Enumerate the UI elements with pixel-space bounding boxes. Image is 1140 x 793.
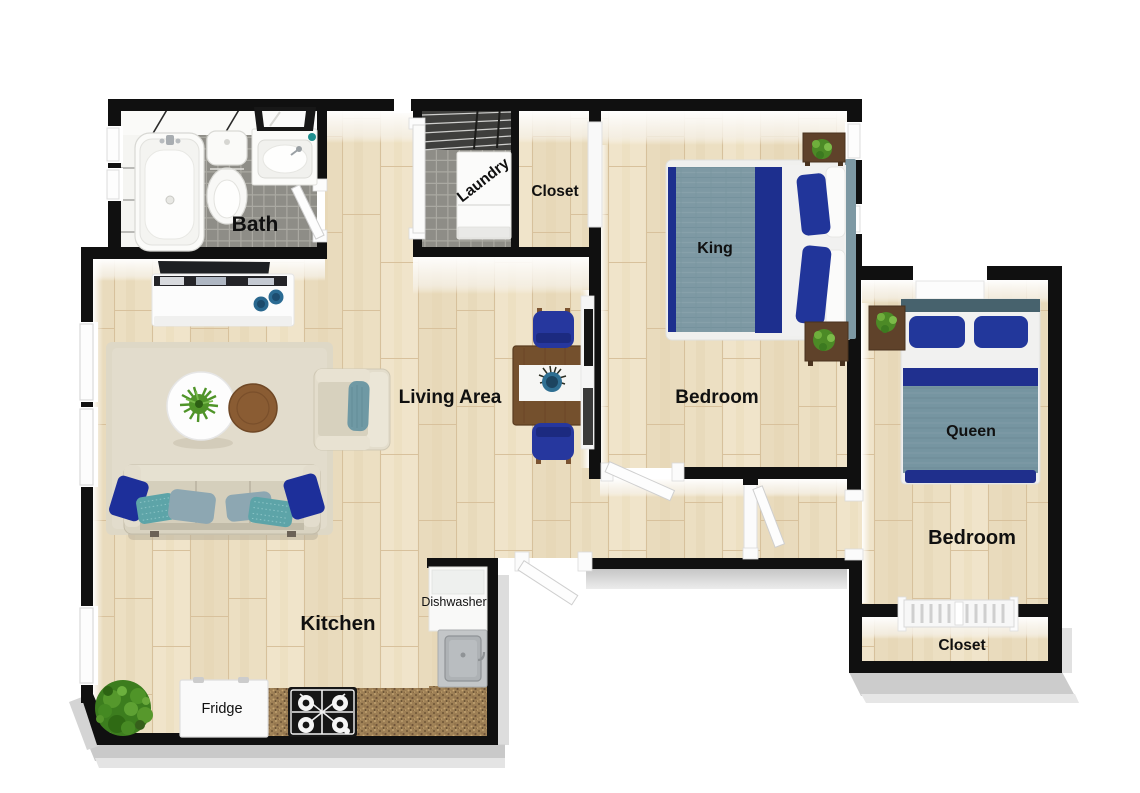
svg-text:Kitchen: Kitchen — [300, 612, 375, 635]
svg-text:Bath: Bath — [232, 213, 279, 236]
svg-text:Queen: Queen — [946, 423, 996, 440]
svg-text:King: King — [697, 240, 733, 257]
svg-text:Living Area: Living Area — [399, 387, 502, 408]
svg-text:Fridge: Fridge — [201, 701, 242, 717]
svg-text:Bedroom: Bedroom — [675, 387, 758, 408]
svg-text:Closet: Closet — [938, 637, 985, 654]
svg-text:Dishwasher: Dishwasher — [421, 595, 486, 609]
svg-text:Bedroom: Bedroom — [928, 527, 1016, 549]
svg-text:Closet: Closet — [531, 183, 578, 200]
